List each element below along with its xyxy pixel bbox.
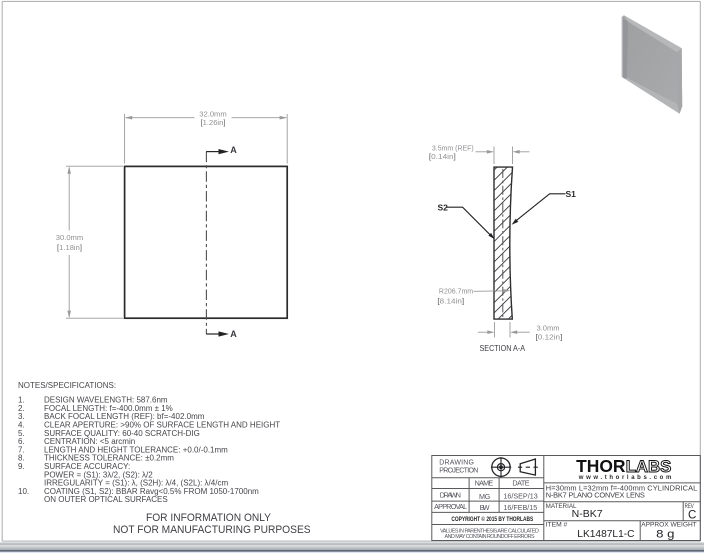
svg-text:3.0mm: 3.0mm bbox=[537, 323, 560, 332]
svg-text:APPROVAL: APPROVAL bbox=[434, 502, 467, 511]
svg-text:APPROX WEIGHT: APPROX WEIGHT bbox=[641, 521, 696, 528]
svg-text:NAME: NAME bbox=[475, 479, 494, 488]
svg-text:AND MAY CONTAIN ROUNDOFF ERROR: AND MAY CONTAIN ROUNDOFF ERRORS bbox=[445, 534, 535, 540]
svg-text:LABS: LABS bbox=[626, 457, 672, 476]
svg-text:THOR: THOR bbox=[576, 456, 626, 476]
svg-text:ITEM #: ITEM # bbox=[546, 521, 568, 528]
svg-text:[0.12in]: [0.12in] bbox=[536, 332, 563, 341]
svg-text:SECTION A-A: SECTION A-A bbox=[480, 344, 526, 353]
svg-text:[0.14in]: [0.14in] bbox=[429, 152, 456, 161]
svg-text:MG: MG bbox=[479, 492, 491, 501]
svg-text:PROJECTION: PROJECTION bbox=[439, 467, 478, 474]
svg-text:[8.14in]: [8.14in] bbox=[437, 296, 464, 305]
svg-text:COPYRIGHT © 2015 BY THORLABS: COPYRIGHT © 2015 BY THORLABS bbox=[451, 516, 533, 523]
svg-text:FOR INFORMATION ONLY: FOR INFORMATION ONLY bbox=[146, 512, 272, 524]
svg-text:A: A bbox=[230, 145, 237, 155]
svg-text:16/SEP/13: 16/SEP/13 bbox=[503, 492, 537, 501]
svg-text:N-BK7: N-BK7 bbox=[572, 509, 603, 520]
svg-text:C: C bbox=[688, 510, 696, 522]
svg-text:R206.7mm: R206.7mm bbox=[439, 287, 473, 296]
svg-text:NOT FOR MANUFACTURING PURPOSES: NOT FOR MANUFACTURING PURPOSES bbox=[113, 524, 311, 536]
svg-text:N-BK7 PLANO CONVEX LENS: N-BK7 PLANO CONVEX LENS bbox=[546, 491, 645, 500]
svg-text:ON OUTER OPTICAL SURFACES: ON OUTER OPTICAL SURFACES bbox=[44, 495, 168, 504]
svg-text:A: A bbox=[230, 329, 237, 339]
svg-text:10.: 10. bbox=[18, 487, 29, 496]
svg-text:DRAWN: DRAWN bbox=[440, 491, 461, 500]
svg-text:BW: BW bbox=[480, 503, 490, 512]
svg-text:30.0mm: 30.0mm bbox=[56, 233, 83, 242]
svg-text:3.5mm (REF): 3.5mm (REF) bbox=[432, 143, 474, 152]
svg-text:8 g: 8 g bbox=[656, 529, 674, 541]
svg-text:NOTES/SPECIFICATIONS:: NOTES/SPECIFICATIONS: bbox=[18, 381, 116, 390]
svg-text:[1.18in]: [1.18in] bbox=[57, 243, 82, 252]
svg-text:LK1487L1-C: LK1487L1-C bbox=[577, 529, 635, 540]
svg-text:32.0mm: 32.0mm bbox=[199, 109, 226, 118]
svg-text:9.: 9. bbox=[18, 462, 25, 471]
svg-text:16/FEB/15: 16/FEB/15 bbox=[503, 503, 537, 512]
svg-text:[1.26in]: [1.26in] bbox=[201, 118, 226, 127]
svg-text:DRAWING: DRAWING bbox=[439, 460, 474, 467]
svg-text:DATE: DATE bbox=[512, 479, 529, 488]
svg-text:S1: S1 bbox=[566, 189, 577, 199]
